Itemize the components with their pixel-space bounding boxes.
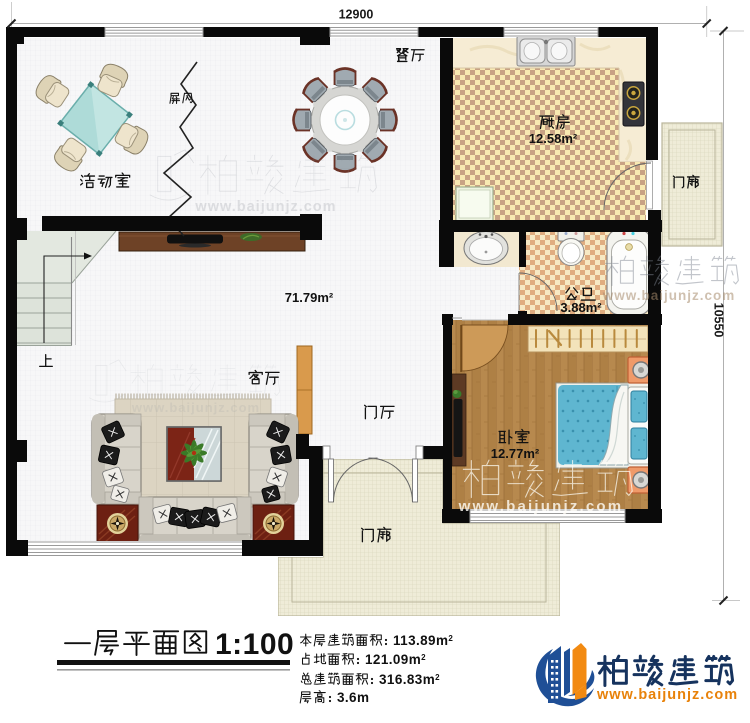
svg-text:www.baijunjz.com: www.baijunjz.com xyxy=(194,199,336,215)
svg-text:113.89m2: 113.89m2 xyxy=(393,633,453,648)
svg-text:316.83m2: 316.83m2 xyxy=(379,672,440,687)
svg-text:1:100: 1:100 xyxy=(215,628,294,661)
svg-text:www.baijunjz.com: www.baijunjz.com xyxy=(131,400,260,415)
svg-text:3.88m²: 3.88m² xyxy=(560,300,602,315)
svg-text:12.58m²: 12.58m² xyxy=(529,131,578,146)
svg-text:12900: 12900 xyxy=(339,8,374,22)
svg-text:3.6m: 3.6m xyxy=(337,690,369,705)
svg-text:www.baijunjz.com: www.baijunjz.com xyxy=(596,687,738,703)
svg-text:www.baijunjz.com: www.baijunjz.com xyxy=(602,288,736,303)
svg-text:121.09m2: 121.09m2 xyxy=(365,652,426,667)
svg-text:12.77m²: 12.77m² xyxy=(491,446,540,461)
svg-text:71.79m²: 71.79m² xyxy=(285,290,334,305)
svg-text:www.baijunjz.com: www.baijunjz.com xyxy=(458,498,624,515)
svg-text:10550: 10550 xyxy=(712,303,726,338)
